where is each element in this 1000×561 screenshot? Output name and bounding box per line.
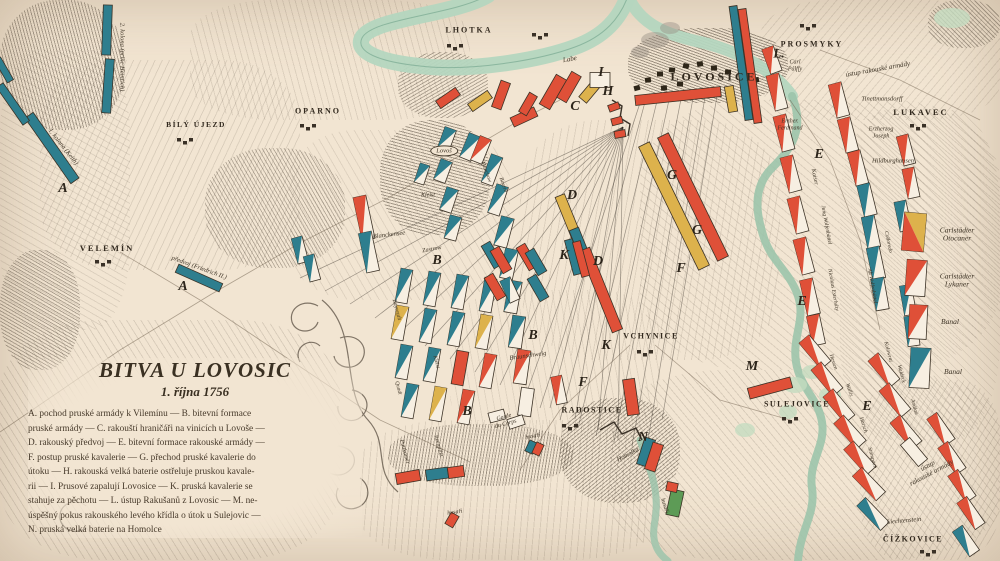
unit-mark — [666, 481, 679, 492]
unit-mark — [102, 5, 113, 55]
hill-hatching — [560, 398, 680, 503]
unit-label: ústup rakouské armády — [845, 60, 911, 79]
unit-mark — [0, 83, 29, 125]
unit-mark — [793, 237, 815, 275]
unit-mark — [510, 107, 538, 127]
unit-mark — [513, 349, 531, 384]
unit-label: Kolowrat — [882, 341, 893, 363]
unit-mark — [525, 248, 547, 276]
unit-mark — [447, 311, 465, 347]
legend-line: pruské armády — C. rakouští hraničáři na… — [28, 422, 362, 437]
reference-letter: F — [676, 261, 685, 277]
smoke — [631, 22, 680, 58]
unit-mark — [800, 278, 821, 316]
battle-map: LHOTKAPROSMYKYLOVOSICELUKAVECOPARNOBÍLÝ … — [0, 0, 1000, 561]
unit-mark — [948, 469, 976, 502]
unit-mark — [747, 377, 792, 399]
unit-mark — [837, 117, 858, 153]
unit-mark — [395, 469, 421, 484]
unit-mark — [303, 254, 320, 282]
reference-letter: A — [58, 181, 67, 197]
unit-label: Puttkamer — [398, 439, 411, 465]
unit-mark — [494, 216, 514, 248]
legend-symbol — [905, 259, 927, 296]
unit-mark — [532, 442, 544, 456]
unit-label: Kleist — [421, 193, 435, 200]
unit-mark — [729, 6, 753, 121]
unit-mark — [492, 80, 511, 110]
unit-label: Lovoš — [430, 145, 458, 156]
legend-label: Banal — [944, 368, 962, 376]
unit-mark — [927, 412, 955, 445]
unit-mark — [807, 314, 826, 346]
unit-mark — [957, 496, 985, 529]
unit-mark — [787, 196, 809, 234]
unit-mark — [516, 243, 538, 271]
unit-label: Harsch — [858, 416, 869, 433]
legend-line: stahuje za pěchotu — L. ústup Rakušanů z… — [28, 494, 362, 509]
unit-mark — [475, 314, 493, 350]
unit-label: Münchow — [479, 161, 492, 183]
legend-symbol — [901, 212, 926, 252]
river-labe — [361, 0, 792, 96]
unit-mark — [896, 134, 915, 166]
place-label: RADOSTICE — [561, 407, 622, 416]
field-hatching — [360, 420, 660, 560]
unit-mark — [102, 59, 115, 113]
unit-label: Waldeck — [896, 364, 907, 383]
reference-letter: E — [814, 147, 823, 163]
field-hatching — [860, 380, 1000, 560]
unit-mark — [799, 335, 831, 369]
unit-label: Erzherzog Joseph — [869, 126, 894, 139]
field-hatching — [760, 0, 1000, 120]
unit-label: Garde du Corps — [493, 412, 518, 431]
legend-label: Carlstädter Lykaner — [940, 273, 975, 290]
unit-label: Bevern — [497, 177, 508, 194]
unit-mark — [879, 383, 911, 417]
field-hatching — [450, 290, 660, 440]
map-legend-text: A. pochod pruské armády k Vilemínu — B. … — [28, 407, 362, 538]
unit-mark — [447, 465, 464, 478]
unit-mark — [423, 347, 441, 383]
unit-mark — [823, 389, 855, 423]
lovosice-town — [633, 61, 759, 91]
redoubt-lines — [600, 100, 642, 440]
place-label: LHOTKA — [445, 27, 492, 36]
unit-mark — [952, 525, 979, 556]
unit-mark — [436, 87, 461, 108]
unit-mark — [500, 277, 520, 303]
map-title-block: BITVA U LOVOSIC 1. října 1756 A. pochod … — [28, 358, 362, 538]
unit-mark — [395, 344, 413, 380]
place-label: OPARNO — [295, 108, 341, 117]
unit-mark — [551, 375, 568, 405]
place-label: ČÍŽKOVICE — [883, 536, 943, 545]
hill-hatching — [388, 424, 573, 486]
unit-mark — [938, 441, 966, 474]
map-date: 1. října 1756 — [28, 384, 362, 400]
artillery-fire-lines — [300, 96, 717, 446]
unit-mark — [762, 46, 782, 75]
unit-mark — [518, 387, 535, 417]
unit-mark — [639, 142, 710, 270]
legend-symbol — [909, 348, 931, 389]
unit-mark — [175, 264, 223, 292]
unit-mark — [857, 183, 877, 217]
unit-mark — [291, 236, 308, 264]
unit-mark — [635, 87, 722, 106]
unit-mark — [25, 112, 79, 183]
unit-mark — [773, 114, 795, 152]
unit-mark — [608, 102, 621, 112]
unit-mark — [434, 159, 453, 184]
unit-mark — [460, 133, 481, 162]
legend-line: úspěšný pokus rakouského levého křídla o… — [28, 509, 362, 524]
reference-letter: N — [638, 430, 648, 446]
unit-mark — [579, 247, 622, 333]
stream — [640, 96, 823, 561]
unit-label: Kleist — [431, 355, 440, 369]
field-hatching — [840, 110, 1000, 440]
unit-mark — [0, 57, 14, 83]
unit-label: Labe — [562, 55, 577, 65]
unit-mark — [611, 116, 623, 126]
unit-mark — [440, 187, 459, 214]
reference-letter: C — [570, 99, 579, 115]
hill-hatching — [380, 120, 490, 235]
unit-mark — [358, 231, 379, 273]
unit-mark — [451, 350, 469, 386]
reference-letter: K — [601, 338, 610, 354]
map-title: BITVA U LOVOSIC — [28, 358, 362, 383]
reference-letter: B — [432, 253, 441, 269]
field-hatching — [610, 370, 1000, 560]
unit-mark — [569, 227, 589, 257]
unit-mark — [479, 353, 497, 389]
legend-label: Carlstädter Otocaner — [940, 227, 975, 244]
unit-mark — [444, 215, 462, 241]
unit-mark — [861, 215, 880, 249]
unit-mark — [899, 284, 916, 316]
legend-line: A. pochod pruské armády k Vilemínu — B. … — [28, 407, 362, 422]
unit-mark — [871, 277, 889, 311]
unit-mark — [507, 415, 525, 429]
place-label: PROSMYKY — [781, 41, 844, 50]
reference-letter: E — [862, 399, 871, 415]
unit-label: 1. kolona (Keith) — [47, 127, 80, 166]
unit-mark — [484, 273, 506, 301]
unit-label: husaři — [658, 498, 669, 515]
unit-mark — [866, 246, 885, 280]
unit-mark — [572, 241, 589, 278]
hill-hatching — [0, 250, 80, 370]
unit-mark — [557, 71, 582, 102]
unit-mark — [902, 167, 920, 199]
reference-letter: K — [559, 248, 568, 264]
reference-letter: E — [797, 294, 806, 310]
unit-label: Homolka — [616, 446, 640, 464]
unit-mark — [539, 74, 566, 109]
reference-letter: F — [578, 375, 587, 391]
reference-letter: G — [692, 223, 702, 239]
unit-mark — [457, 389, 475, 425]
unit-mark — [419, 308, 437, 344]
reference-letter: A — [178, 279, 187, 295]
field-hatching — [290, 130, 510, 300]
unit-mark — [395, 268, 413, 304]
unit-mark — [429, 386, 447, 422]
unit-mark — [504, 280, 522, 314]
unit-label: Carl Pálffy — [788, 59, 802, 72]
place-label: VCHYNICE — [623, 333, 679, 342]
unit-mark — [519, 92, 538, 116]
unit-mark — [900, 437, 927, 466]
unit-label: 2. kolona (princ Heinrich) — [118, 23, 125, 92]
unit-mark — [868, 353, 900, 387]
unit-mark — [828, 82, 849, 118]
unit-mark — [481, 241, 503, 269]
unit-mark — [490, 246, 512, 274]
unit-mark — [904, 315, 920, 346]
unit-label: Braunschweig — [509, 350, 547, 362]
unit-mark — [614, 130, 626, 139]
unit-mark — [451, 274, 469, 310]
unit-label: Wallis — [844, 383, 854, 398]
unit-label: Kaiser — [809, 168, 819, 185]
unit-mark — [590, 73, 610, 88]
place-label: SULEJOVICE — [764, 401, 830, 410]
reference-letter: H — [603, 84, 614, 100]
unit-label: husaři — [447, 509, 463, 518]
unit-label: Stampach — [866, 447, 878, 470]
unit-label: Zastrow — [422, 245, 442, 255]
unit-label: Bayreuth — [390, 299, 402, 322]
unit-label: Quadt — [393, 381, 403, 396]
legend-line: útoku — H. rakouská velká baterie ostřel… — [28, 465, 362, 480]
unit-mark — [555, 194, 581, 239]
unit-mark — [780, 155, 802, 193]
trees — [735, 8, 970, 437]
field-hatching — [40, 60, 300, 270]
unit-mark — [564, 239, 581, 276]
hill-hatching — [398, 52, 488, 118]
unit-label: Blanckensee — [372, 229, 405, 240]
unit-label: Erzher. Ferdinand — [777, 118, 802, 131]
legend-label: Banal — [941, 318, 959, 326]
unit-label: Hildburghausen — [872, 157, 914, 164]
unit-label: Jung Wolfenbüttel — [820, 205, 833, 245]
unit-mark — [508, 315, 525, 348]
unit-mark — [834, 415, 866, 449]
hill-hatching — [928, 0, 1000, 48]
unit-mark — [666, 489, 684, 517]
unit-mark — [890, 415, 922, 449]
legend-symbol — [908, 305, 928, 340]
unit-mark — [844, 441, 876, 475]
reference-letter: L. — [773, 47, 784, 62]
unit-mark — [894, 200, 912, 232]
unit-mark — [423, 271, 441, 307]
unit-mark — [414, 163, 430, 185]
reference-letter: D — [567, 188, 577, 204]
reference-letter: M — [746, 359, 758, 375]
unit-mark — [853, 467, 886, 500]
unit-mark — [658, 133, 729, 261]
unit-label: Andlau — [909, 399, 919, 416]
unit-mark — [471, 136, 492, 165]
reference-letter: B — [528, 328, 537, 344]
unit-mark — [353, 195, 375, 241]
legend-line: rii — I. Prusové zapalují Lovosice — K. … — [28, 480, 362, 495]
unit-mark — [847, 150, 868, 186]
unit-mark — [738, 9, 762, 124]
field-hatching — [190, 0, 470, 120]
unit-mark — [811, 362, 843, 396]
unit-label: Nicolaus Esterházy — [826, 269, 839, 312]
legend-line: D. rakouský předvoj — E. bitevní formace… — [28, 436, 362, 451]
unit-mark — [500, 248, 519, 280]
hill-hatching — [0, 0, 125, 130]
reference-letter: D — [593, 254, 603, 270]
place-label: LUKAVEC — [893, 108, 948, 118]
unit-mark — [525, 440, 537, 454]
unit-label: Hessen — [828, 353, 839, 370]
unit-mark — [766, 73, 788, 111]
unit-label: Liechtenstein — [886, 516, 921, 526]
unit-mark — [425, 467, 448, 481]
unit-mark — [481, 154, 503, 186]
unit-mark — [479, 277, 497, 313]
hill-hatching — [628, 28, 788, 103]
unit-label: Tinettmansdorff — [861, 95, 902, 102]
unit-label: předvoj (Friedrich II.) — [170, 255, 227, 282]
unit-mark — [527, 274, 549, 302]
unit-mark — [488, 184, 509, 216]
unit-label: Colloredo — [883, 231, 894, 254]
place-label: BÍLÝ ÚJEZD — [166, 121, 226, 129]
unit-mark — [623, 378, 640, 415]
unit-label: ústup rakouské armády — [905, 452, 955, 489]
unit-mark — [468, 90, 493, 111]
place-label: VELEMÍN — [80, 244, 135, 254]
unit-mark — [857, 498, 889, 531]
reference-letter: I — [598, 65, 603, 81]
unit-mark — [579, 77, 603, 103]
unit-mark — [438, 127, 457, 152]
unit-mark — [391, 305, 409, 341]
unit-label: husaři — [525, 432, 541, 441]
field-hatching — [640, 100, 1000, 370]
unit-label: Alt Wolfenbüttel — [866, 268, 878, 304]
unit-mark — [488, 409, 506, 423]
unit-mark — [445, 512, 459, 528]
legend-line: F. postup pruské kavalerie — G. přechod … — [28, 451, 362, 466]
unit-label: Itzenplitz — [432, 435, 444, 458]
place-label: LOVOSICE — [670, 70, 757, 83]
legend-line: N. pruská velká baterie na Homolce — [28, 523, 362, 538]
field-hatching — [0, 50, 130, 330]
hill-hatching — [205, 148, 345, 268]
unit-mark — [401, 383, 419, 419]
unit-mark — [724, 85, 737, 112]
reference-letter: B — [462, 404, 471, 420]
unit-mark — [636, 437, 655, 467]
field-hatching — [520, 120, 780, 360]
unit-mark — [644, 442, 663, 472]
reference-letter: G — [667, 168, 677, 184]
